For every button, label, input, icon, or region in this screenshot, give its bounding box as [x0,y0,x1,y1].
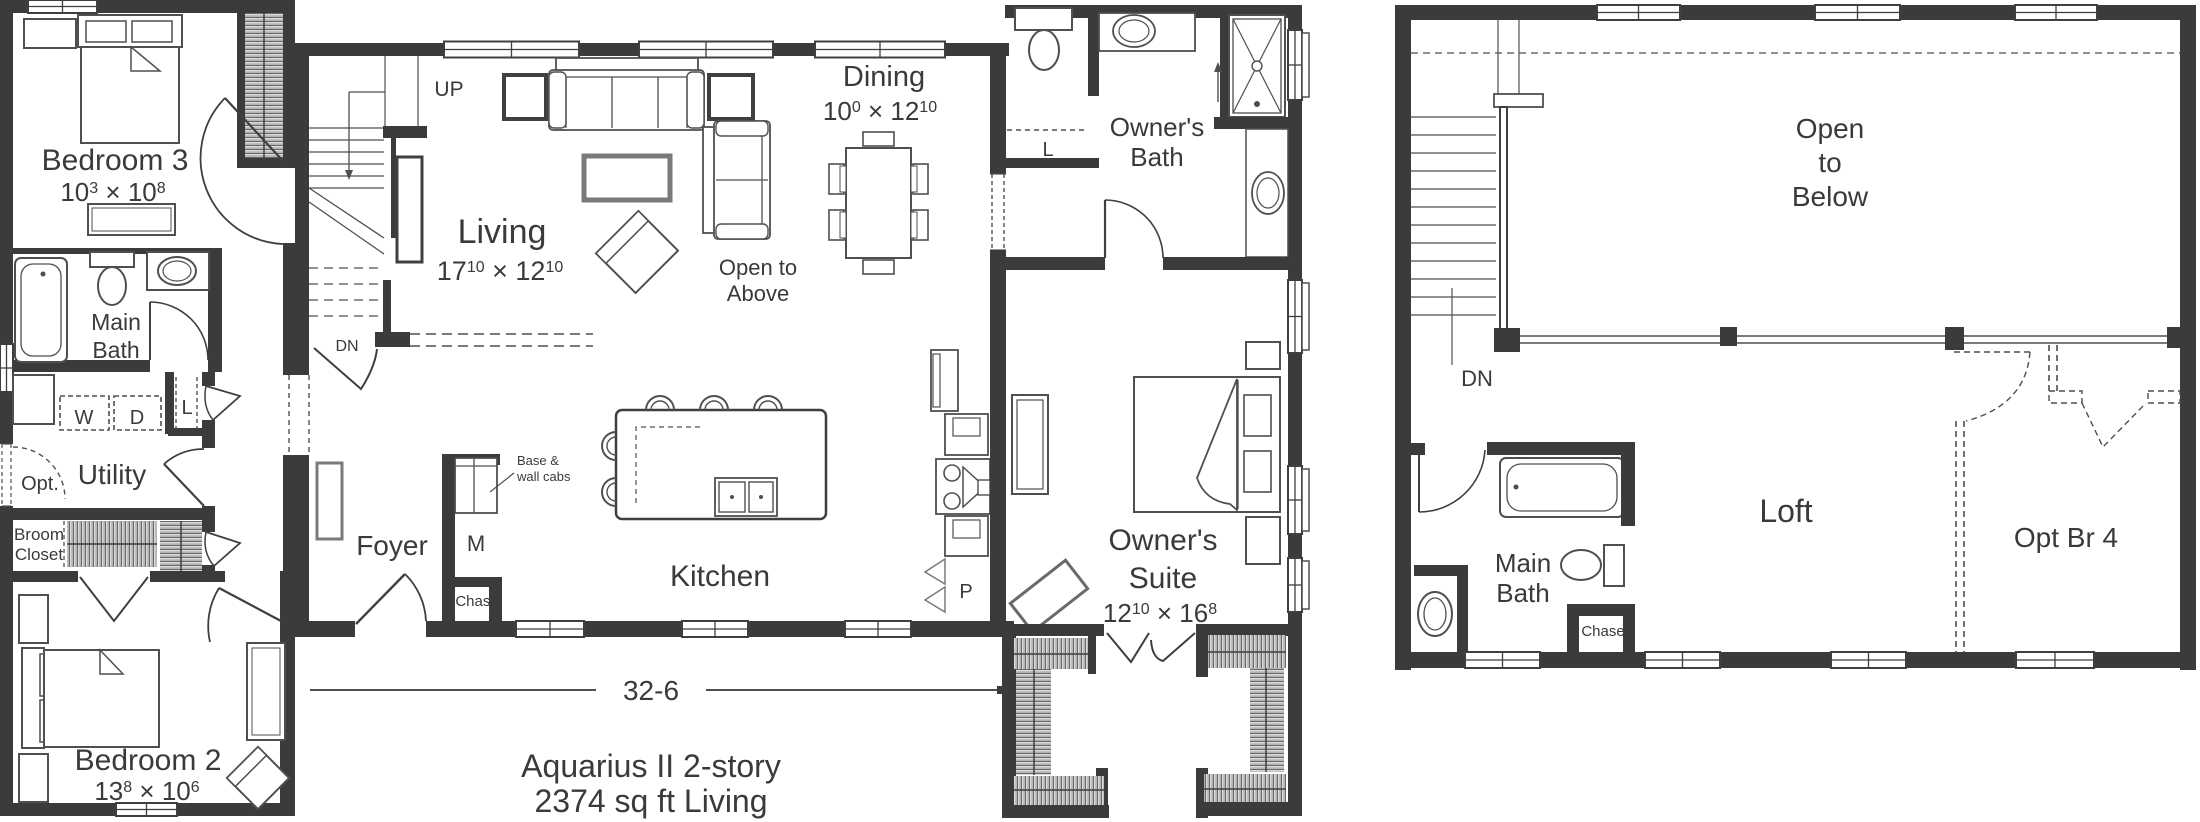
svg-text:Owner's: Owner's [1110,112,1205,142]
svg-text:Main: Main [1495,548,1551,578]
svg-text:Chase: Chase [1581,623,1624,640]
svg-text:Aquarius II 2-story: Aquarius II 2-story [521,748,781,784]
svg-text:DN: DN [1461,366,1493,391]
svg-text:Loft: Loft [1759,493,1812,529]
svg-text:Bath: Bath [1496,578,1550,608]
svg-text:DN: DN [335,338,358,355]
svg-text:2374 sq ft Living: 2374 sq ft Living [534,783,767,819]
svg-text:UP: UP [434,78,463,101]
svg-text:Owner's: Owner's [1108,524,1217,557]
svg-text:Utility: Utility [78,459,146,490]
svg-text:Bedroom 3: Bedroom 3 [42,144,189,177]
svg-text:Base &: Base & [517,453,559,468]
svg-text:Living: Living [458,213,547,251]
svg-text:Foyer: Foyer [356,530,428,561]
svg-text:103 × 108: 103 × 108 [60,177,165,207]
svg-text:Open to: Open to [719,255,797,280]
svg-text:to: to [1818,147,1841,178]
svg-text:P: P [959,581,972,603]
svg-text:Main: Main [91,309,141,335]
svg-text:32-6: 32-6 [623,675,679,706]
svg-text:Bath: Bath [92,337,139,363]
svg-text:Above: Above [727,281,789,306]
svg-text:M: M [467,531,485,556]
svg-text:Kitchen: Kitchen [670,560,770,593]
svg-text:1210 × 168: 1210 × 168 [1103,598,1217,628]
svg-text:W: W [75,407,94,429]
svg-text:Suite: Suite [1129,562,1197,595]
svg-text:Below: Below [1792,181,1869,212]
svg-text:1710 × 1210: 1710 × 1210 [437,256,564,286]
svg-text:Bath: Bath [1130,142,1184,172]
svg-text:Closet: Closet [15,545,63,564]
svg-text:Dining: Dining [843,61,925,93]
svg-text:Opt.: Opt. [21,473,59,495]
svg-text:D: D [130,407,144,429]
svg-text:Broom: Broom [14,525,64,544]
svg-text:Open: Open [1796,113,1865,144]
svg-text:Bedroom 2: Bedroom 2 [75,744,222,777]
svg-text:Opt Br 4: Opt Br 4 [2014,522,2118,553]
svg-text:Chase: Chase [455,593,498,610]
svg-text:wall cabs: wall cabs [516,469,571,484]
svg-text:L: L [1042,139,1053,161]
svg-text:138 × 106: 138 × 106 [94,776,199,806]
svg-text:L: L [181,397,192,419]
